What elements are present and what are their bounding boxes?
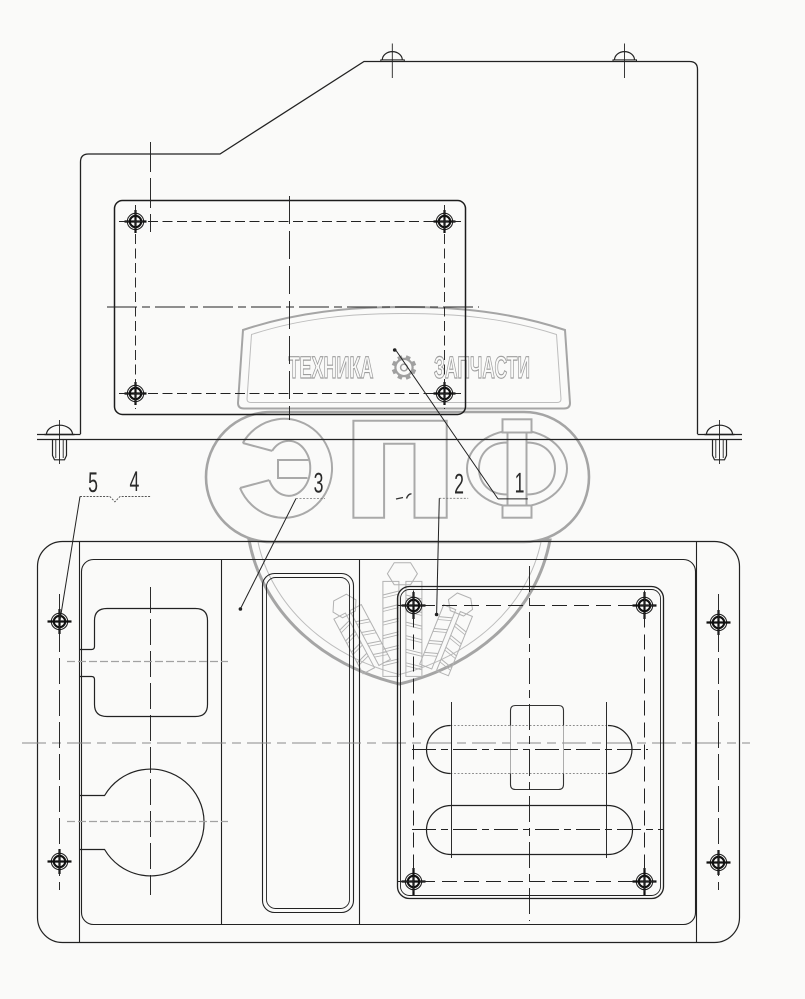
svg-text:2: 2: [454, 468, 464, 500]
svg-text:4: 4: [129, 466, 139, 498]
svg-text:ТЕХНИКА: ТЕХНИКА: [289, 350, 374, 385]
svg-text:3: 3: [314, 467, 324, 499]
svg-text:ЗАПЧАСТИ: ЗАПЧАСТИ: [434, 350, 530, 385]
svg-text:1: 1: [515, 467, 525, 499]
svg-text:5: 5: [88, 467, 98, 499]
